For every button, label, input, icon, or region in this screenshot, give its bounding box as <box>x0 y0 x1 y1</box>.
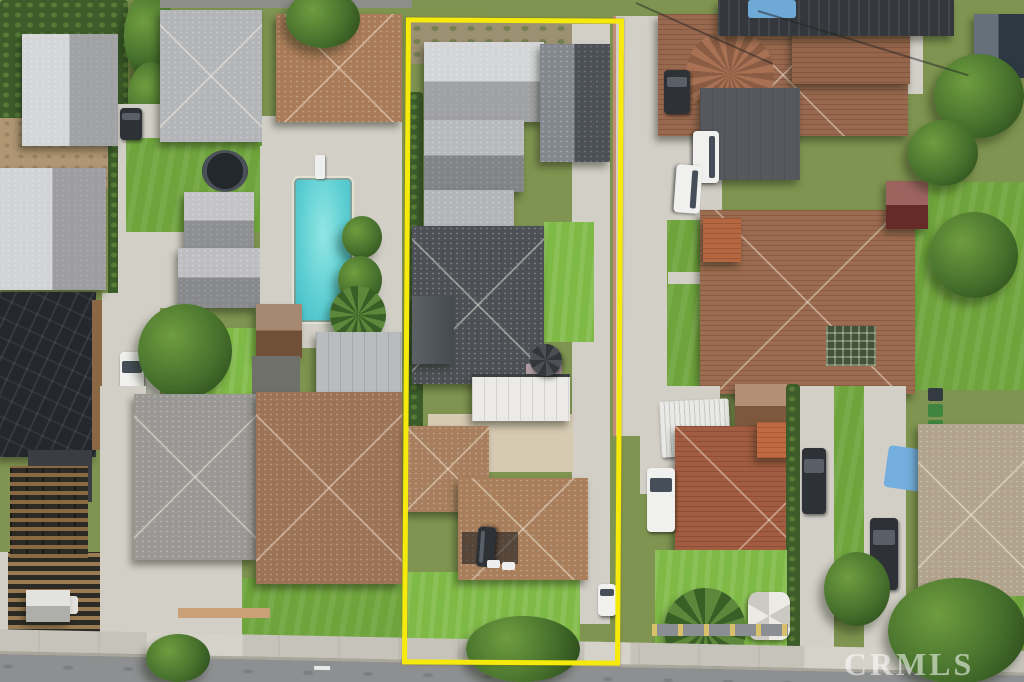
walkway-to-house <box>668 272 704 284</box>
white-car-driveway-2 <box>673 164 702 214</box>
white-pickup <box>647 468 675 532</box>
trampoline <box>202 150 248 192</box>
tree-right-1 <box>930 212 1018 298</box>
wood-lattice-framing <box>10 466 88 558</box>
gray-house-roof-1 <box>22 34 118 146</box>
property-boundary-outline <box>402 17 624 665</box>
black-tarp-construction-roof <box>0 292 96 457</box>
dark-suv-driveway-a <box>802 448 826 514</box>
dark-suv-top <box>664 70 690 114</box>
aerial-photo: CRMLS <box>0 0 1024 682</box>
garden-wall-lanterns <box>652 624 788 636</box>
brown-house-roof-bottom-center <box>256 392 402 584</box>
orange-shed-house2 <box>703 218 741 262</box>
gray-house-roof-4 <box>184 192 254 250</box>
red-shed <box>886 181 928 229</box>
diving-board <box>315 155 325 179</box>
fence-top-center <box>160 0 412 8</box>
tree-at-sidewalk-left <box>146 634 210 682</box>
gray-house-roof-2 <box>0 168 106 290</box>
dark-car-left-driveway <box>120 108 142 140</box>
tree-top-right-2 <box>908 120 978 186</box>
crmls-watermark: CRMLS <box>804 646 1014 682</box>
large-tree-mid-left <box>138 304 232 398</box>
gray-house-roof-3 <box>160 10 262 142</box>
tree-strip-right <box>824 552 890 626</box>
shrub-right-of-pool-1 <box>342 216 382 258</box>
white-shed-bottom-left <box>26 590 70 622</box>
trash-bin-green-1 <box>928 404 943 417</box>
low-block-wall <box>178 608 270 618</box>
brown-shed-col2 <box>256 304 302 358</box>
driveway-right-a <box>800 386 834 650</box>
gray-house-roof-5 <box>178 248 260 308</box>
road-marking <box>314 666 330 670</box>
gray-house-roof-bottom-center <box>134 394 256 560</box>
trash-bin-dark <box>928 388 943 401</box>
lattice-gazebo <box>826 326 876 366</box>
